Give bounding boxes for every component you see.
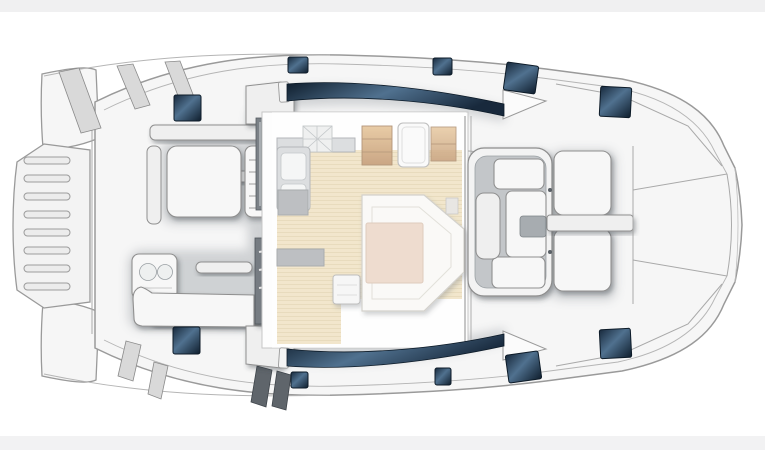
stbd-hull-stern: [41, 301, 99, 382]
fwd-seat-bottom: [492, 257, 545, 288]
platform-slat-2: [24, 175, 70, 182]
boarding-step-bottom: [196, 262, 252, 273]
deck-hatch-sidedeck-port-2: [433, 58, 452, 75]
deck-hatch-sidedeck-port-1: [288, 57, 308, 73]
wetbar-sink-2: [158, 265, 173, 280]
platform-slat-7: [24, 265, 70, 272]
deck-plan-svg: [0, 0, 765, 450]
salon-roof-veil: [272, 112, 466, 348]
deck-hatch-foredeck-port-1: [503, 62, 539, 94]
platform-slat-8: [24, 283, 70, 290]
deck-hatch-aft-port: [174, 95, 201, 121]
deck-hatch-aft-stbd: [173, 327, 200, 354]
deck-hatch-sidedeck-stbd-1: [291, 372, 308, 388]
wetbar-sink-1: [140, 264, 157, 281]
boat-deck-plan: [0, 0, 765, 450]
bottom-band: [0, 436, 765, 450]
cockpit-coaming-side: [147, 146, 161, 224]
forward-cockpit: [468, 148, 633, 296]
platform-slat-4: [24, 211, 70, 218]
platform-slat-1: [24, 157, 70, 164]
deck-hatch-sidedeck-stbd-2: [435, 368, 451, 385]
bow-sunpad-port: [554, 151, 611, 215]
platform-slat-3: [24, 193, 70, 200]
deck-hatch-foredeck-port-2: [599, 86, 632, 118]
fwd-hinge-top: [548, 188, 552, 192]
cockpit-table: [167, 146, 241, 217]
salon: [262, 112, 471, 348]
top-band: [0, 0, 765, 12]
cockpit-coaming-top: [150, 125, 262, 140]
fwd-hinge-bottom: [548, 250, 552, 254]
platform-slat-5: [24, 229, 70, 236]
deck-hatch-foredeck-stbd-1: [505, 351, 542, 383]
boat: [13, 54, 742, 410]
bow-walkway-step: [547, 215, 633, 231]
fwd-seat-top: [494, 159, 544, 189]
fwd-table-tab: [520, 216, 546, 237]
deck-hatch-foredeck-stbd-2: [599, 328, 631, 359]
fwd-side-panel: [476, 193, 500, 259]
bow-sunpad-stbd: [554, 229, 611, 291]
platform-slat-6: [24, 247, 70, 254]
